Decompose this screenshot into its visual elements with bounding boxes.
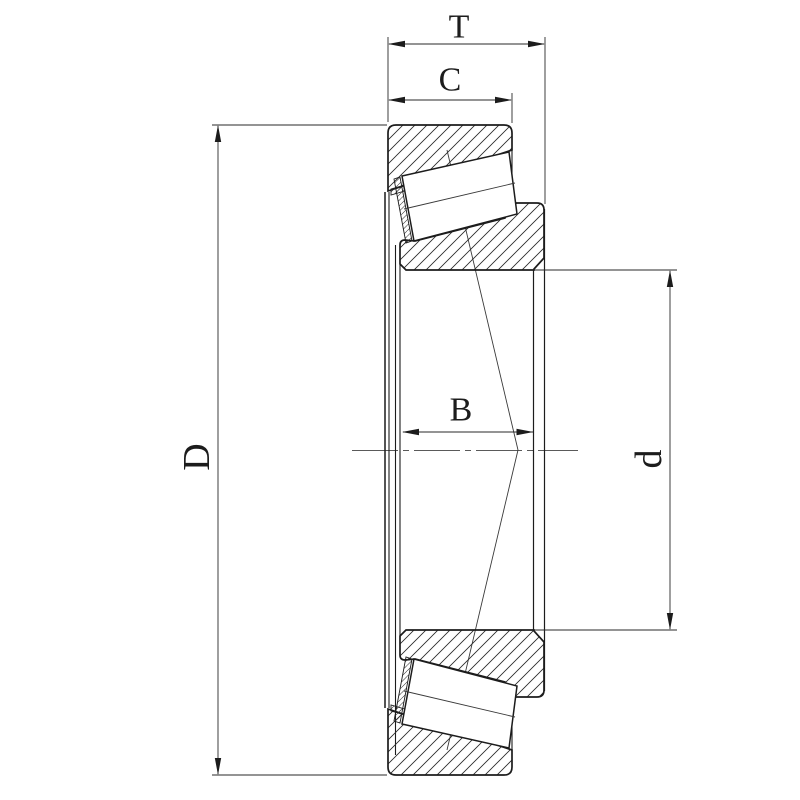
arrow-T-left xyxy=(388,41,405,47)
bearing-drawing-canvas: T C B D d xyxy=(0,0,800,800)
arrow-C-left xyxy=(388,97,405,103)
arrow-T-right xyxy=(528,41,545,47)
arrow-B-right xyxy=(517,429,534,435)
label-bore-diameter: d xyxy=(628,450,670,469)
arrow-d-top xyxy=(667,270,673,287)
arrow-D-top xyxy=(215,125,221,142)
arrow-B-left xyxy=(402,429,419,435)
bearing-cross-section-diagram: T C B D d xyxy=(0,0,800,800)
arrow-d-bottom xyxy=(667,613,673,630)
label-total-width: T xyxy=(449,9,470,46)
label-cup-width: C xyxy=(439,62,462,99)
arrow-D-bottom xyxy=(215,758,221,775)
arrow-C-right xyxy=(495,97,512,103)
dimension-cone-width xyxy=(402,429,534,435)
label-outer-diameter: D xyxy=(176,443,218,470)
label-cone-width: B xyxy=(450,392,473,429)
